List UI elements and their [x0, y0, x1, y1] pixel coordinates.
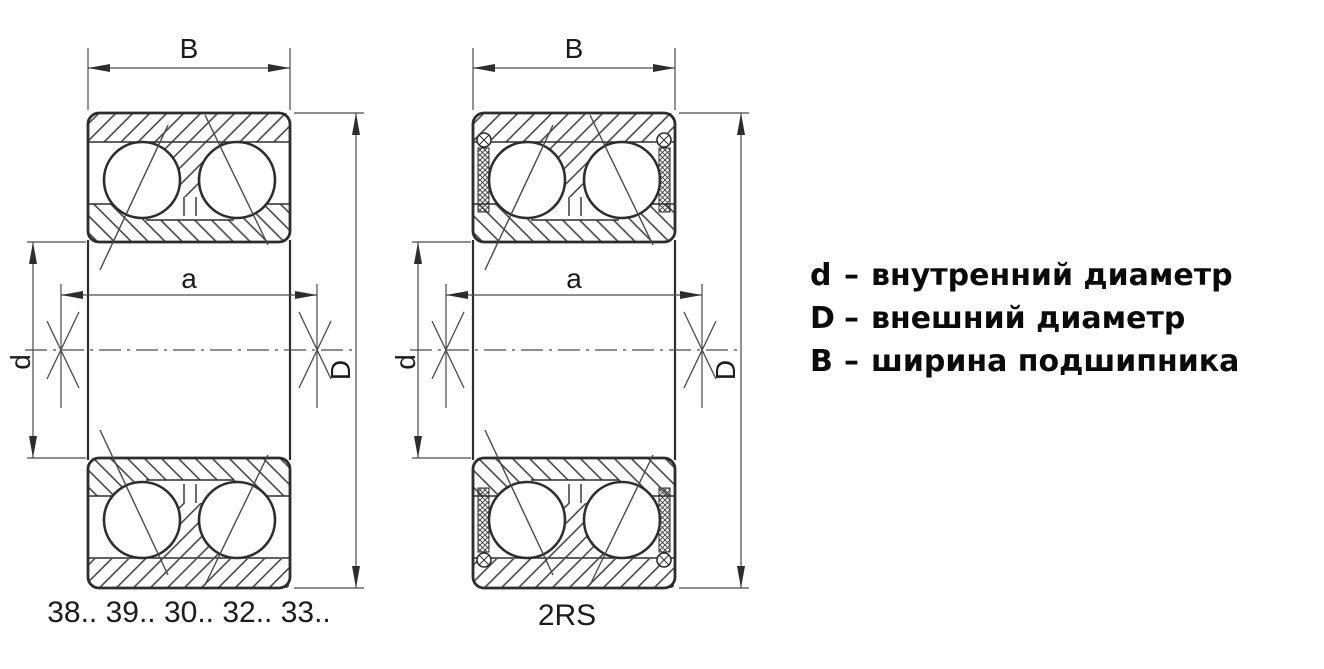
legend-item-d: d – внутренний диаметр — [810, 254, 1239, 297]
legend-description: внутренний диаметр — [871, 254, 1233, 297]
dimension-legend: d – внутренний диаметр D – внешний диаме… — [810, 254, 1239, 383]
legend-term: B — [810, 340, 844, 383]
dim-label-span-right: a — [566, 263, 582, 294]
dim-label-width-right: B — [565, 33, 584, 64]
dim-label-outer-right: D — [710, 360, 741, 380]
caption-series-left: 38.. 39.. 30.. 32.. 33.. — [47, 596, 331, 629]
legend-item-D: D – внешний диаметр — [810, 297, 1239, 340]
legend-item-B: B – ширина подшипника — [810, 340, 1239, 383]
bearing-cross-section-right: B a d D 2RS — [390, 33, 749, 632]
legend-separator: – — [844, 340, 859, 383]
dim-label-bore-right: d — [390, 354, 421, 370]
legend-term: d — [810, 254, 844, 297]
dim-label-outer-left: D — [325, 360, 356, 380]
dim-label-width-left: B — [180, 33, 199, 64]
dim-label-span-left: a — [181, 263, 197, 294]
bearing-diagram-page: B a d D 38.. 39.. 30.. 32.. 33.. B a d D… — [0, 0, 1324, 669]
legend-separator: – — [844, 297, 859, 340]
legend-term: D — [810, 297, 844, 340]
legend-description: ширина подшипника — [871, 340, 1239, 383]
dim-label-bore-left: d — [5, 354, 36, 370]
legend-separator: – — [844, 254, 859, 297]
legend-description: внешний диаметр — [871, 297, 1185, 340]
bearing-cross-section-left: B a d D 38.. 39.. 30.. 32.. 33.. — [5, 33, 364, 629]
caption-type-right: 2RS — [538, 599, 596, 632]
